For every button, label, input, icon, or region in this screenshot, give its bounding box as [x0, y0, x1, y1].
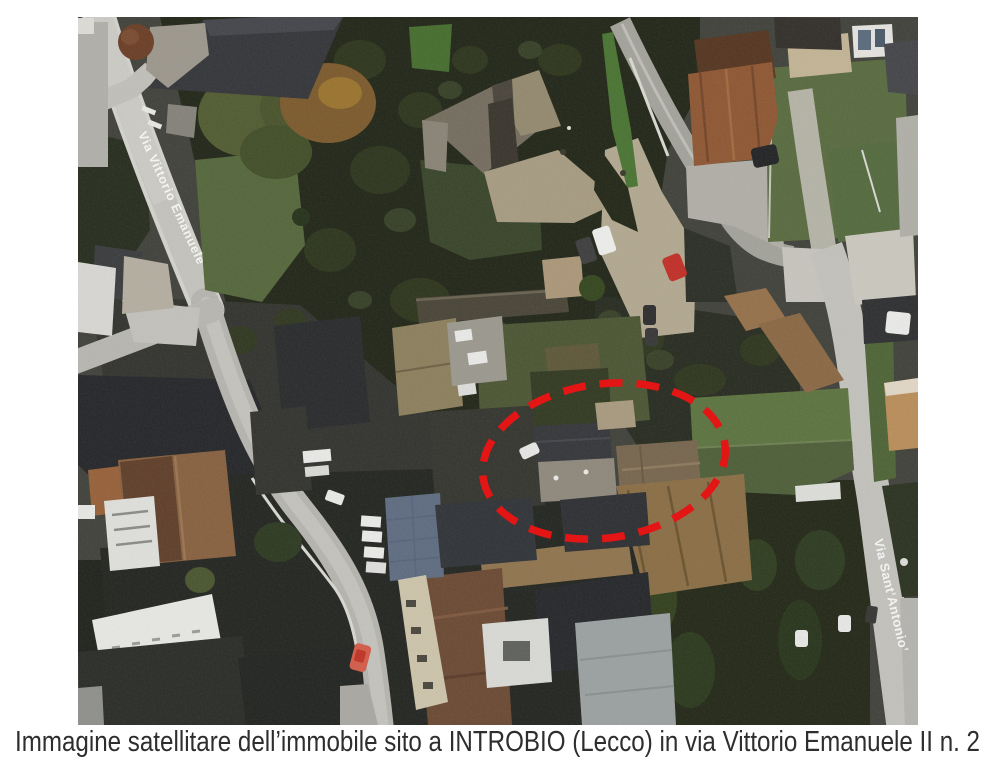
svg-text:Immagine satellitare dell’immo: Immagine satellitare dell’immobile sito … — [15, 726, 980, 758]
